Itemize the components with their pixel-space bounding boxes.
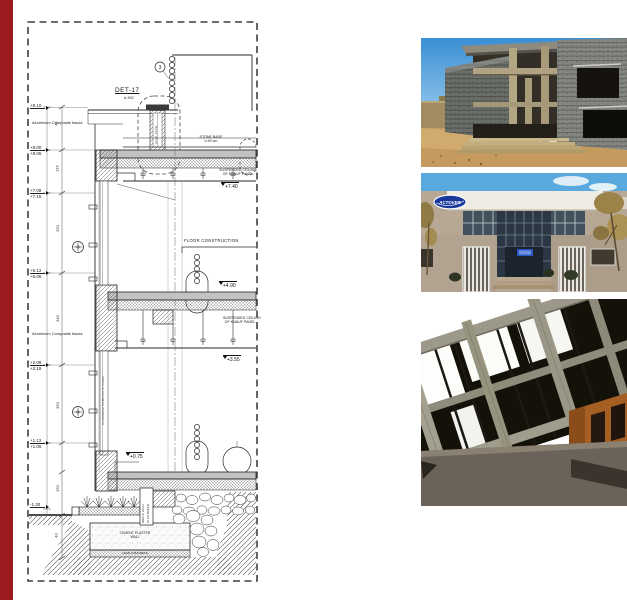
brick-wall-label-1: BRICK WALL (142, 490, 145, 523)
foundation-label: CEMENT PLASTER WALL (102, 531, 168, 539)
level-740: +7.40 (221, 182, 239, 190)
dim-value: 41 (54, 121, 59, 125)
logo-text: ACTOVER (438, 200, 461, 205)
fascia-label-lower: Aluminium Composite fascia (32, 332, 82, 336)
suspended-ceiling-label-2: SUSPENDED CEILING OF KNAUF PANEL (223, 316, 257, 324)
dim-value: 115 (55, 165, 60, 171)
stone-base-label: STONE BASE t=40 cm (193, 135, 229, 143)
level-marker: +8.00+8.05 (30, 145, 52, 151)
level-marker: +1.12+1.06 (30, 438, 52, 444)
render-base-band (421, 441, 627, 506)
lean-concrete-label: LEAN CONCRETE (102, 551, 168, 555)
level-marker: -1.30 (30, 502, 52, 508)
photo-3d-render (421, 299, 627, 506)
photo-office-building: ACTOVER (421, 173, 627, 292)
floor-construction-label: FLOOR CONSTRUCTION (184, 239, 239, 243)
drawing-labels: DET-17 A-902 Aluminium Composite fascia … (27, 21, 258, 582)
brick-wall-label-2: PLASTERED (147, 490, 150, 523)
mullion-note: ALUMINIUM COMPOSITE PANEL (102, 355, 105, 425)
dim-value: 350 (55, 402, 60, 409)
level-marker: +2.08+2.15 (30, 360, 52, 366)
detail-callout-ref: A-902 (124, 96, 134, 100)
level-490: +4.90 (219, 281, 237, 289)
det-note: ALUM. PANEL (155, 116, 158, 144)
level-marker: +7.08+7.15 (30, 188, 52, 194)
suspended-ceiling-label-1: SUSPENDED CEILING OF KNAUF PANEL (219, 168, 257, 176)
level-marker: +5.12+5.06 (30, 268, 52, 274)
construction-building (445, 38, 627, 150)
dim-value: 250 (55, 225, 60, 232)
level-marker: +9.10 (30, 103, 52, 109)
dim-value: 340 (55, 315, 60, 322)
detail-drawing: 3 (27, 21, 258, 582)
level-075: +0.75 (126, 452, 144, 460)
office-steps (493, 277, 555, 289)
dim-value: 150 (55, 485, 60, 492)
office-logo: ACTOVER (434, 195, 466, 209)
detail-callout-title: DET-17 (115, 87, 139, 94)
accent-bar (0, 0, 13, 600)
construction-steps (457, 138, 587, 153)
portfolio-page: 3 (0, 0, 627, 600)
photo-construction-site (421, 38, 627, 167)
dim-value: 40 (54, 533, 59, 537)
level-355: +3.55 (223, 355, 241, 363)
